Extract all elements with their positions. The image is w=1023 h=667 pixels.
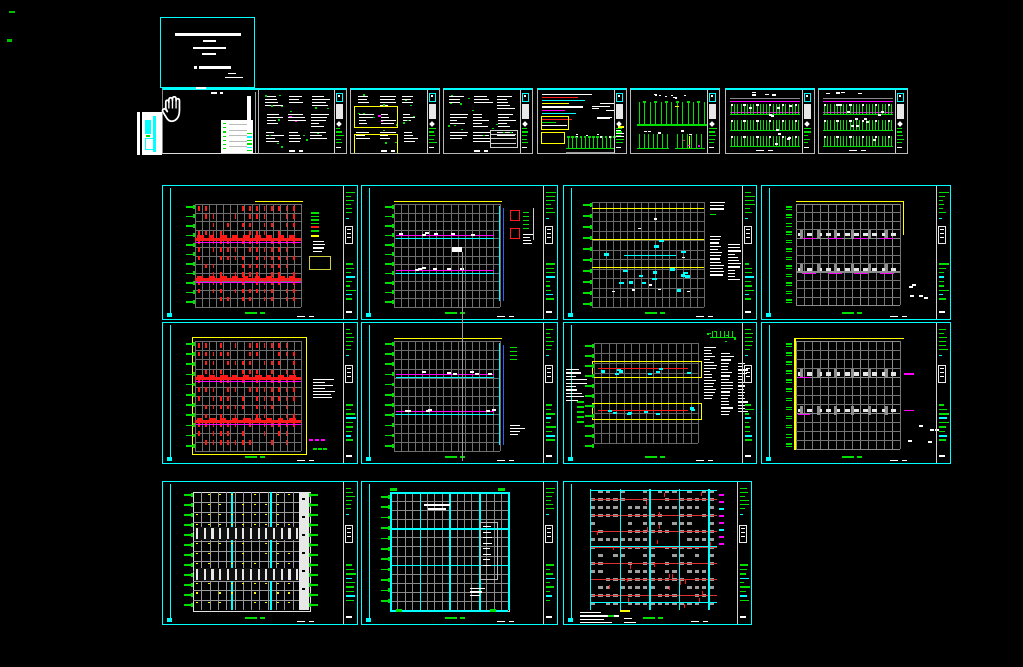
fixture-mark bbox=[208, 494, 210, 495]
circuit-stroke bbox=[293, 256, 295, 261]
titleblock-text bbox=[939, 435, 947, 437]
titleblock-text bbox=[745, 431, 750, 433]
text-line bbox=[470, 591, 482, 592]
text-line bbox=[313, 391, 335, 392]
titleblock-text bbox=[346, 417, 356, 419]
legend-mark bbox=[311, 212, 319, 214]
outlet-plan[interactable] bbox=[361, 481, 558, 625]
text-line bbox=[738, 389, 744, 390]
titleblock-text bbox=[740, 578, 749, 580]
axis-tick bbox=[385, 235, 392, 237]
grid-line bbox=[796, 297, 900, 298]
axis-tick bbox=[392, 271, 394, 275]
circuit-stroke bbox=[286, 396, 288, 401]
titleblock-text bbox=[546, 268, 554, 270]
titleblock-text bbox=[940, 368, 944, 369]
titleblock-divider bbox=[742, 323, 743, 463]
mark bbox=[775, 143, 778, 145]
text-line bbox=[313, 397, 332, 398]
riser bbox=[696, 134, 697, 148]
circuit-stroke bbox=[249, 387, 251, 392]
circuit-stroke bbox=[289, 418, 296, 421]
text-line bbox=[721, 372, 732, 373]
mark bbox=[413, 116, 415, 117]
grid-line bbox=[592, 278, 704, 279]
circuit-stroke bbox=[227, 256, 229, 261]
fixture-mark bbox=[242, 583, 244, 584]
titleblock-text bbox=[741, 536, 745, 537]
mark bbox=[486, 410, 490, 412]
riser bbox=[661, 102, 662, 124]
axis-tick bbox=[786, 409, 792, 410]
titleblock-text bbox=[740, 496, 745, 497]
panel-stroke bbox=[882, 136, 883, 146]
titleblock-text bbox=[346, 455, 352, 457]
titleblock-box bbox=[709, 104, 716, 119]
axis-tick bbox=[385, 445, 392, 447]
grid-line bbox=[394, 405, 500, 406]
titleblock-text bbox=[347, 372, 351, 373]
text-line bbox=[311, 114, 329, 115]
circuit-stroke bbox=[235, 343, 237, 348]
legend-mark bbox=[311, 216, 319, 218]
circuit-stroke bbox=[232, 375, 237, 378]
text-line bbox=[497, 105, 510, 106]
text-line bbox=[473, 114, 483, 115]
ceiling-block bbox=[695, 570, 699, 573]
axis-tick bbox=[385, 225, 392, 227]
axis-tick bbox=[193, 262, 195, 266]
grid-line bbox=[698, 343, 699, 443]
circuit-stroke bbox=[242, 256, 244, 261]
circuit-line bbox=[598, 368, 688, 369]
grid-line bbox=[592, 231, 704, 232]
panel-block bbox=[795, 136, 798, 138]
titleblock-text bbox=[347, 528, 351, 529]
distribution-sheet-2[interactable] bbox=[818, 88, 908, 154]
axis-tick bbox=[590, 203, 592, 207]
panel-stroke bbox=[792, 120, 793, 130]
axis-tick bbox=[311, 584, 318, 586]
ceiling-block bbox=[643, 586, 647, 589]
text-line bbox=[721, 382, 733, 383]
text-line bbox=[450, 135, 467, 136]
axis-tick bbox=[191, 573, 193, 577]
circuit-stroke bbox=[242, 223, 244, 228]
legend-preview-sheet[interactable] bbox=[137, 112, 162, 155]
device-block bbox=[845, 233, 850, 236]
system-diagram-sheet[interactable] bbox=[537, 88, 627, 154]
panel-block bbox=[731, 136, 734, 138]
grid-line bbox=[592, 307, 704, 308]
cad-canvas[interactable] bbox=[0, 0, 1023, 667]
fixture-mark bbox=[288, 602, 290, 603]
fixture-mark bbox=[196, 553, 198, 554]
ceiling-block bbox=[687, 586, 691, 589]
distribution-sheet-1[interactable] bbox=[725, 88, 815, 154]
mark bbox=[609, 585, 610, 589]
text-line bbox=[566, 379, 587, 380]
titleblock-text bbox=[522, 139, 527, 140]
text-line bbox=[473, 135, 489, 136]
power-plan-2[interactable] bbox=[361, 322, 558, 464]
axis-tick bbox=[592, 444, 594, 448]
panel-stroke bbox=[891, 104, 892, 114]
panel-stroke bbox=[856, 136, 857, 146]
circuit-stroke bbox=[286, 256, 288, 261]
axis-tick bbox=[786, 226, 792, 227]
titleblock-text bbox=[740, 492, 748, 493]
grid-line bbox=[270, 492, 272, 610]
circuit-stroke bbox=[266, 375, 271, 378]
panel-block bbox=[888, 120, 891, 122]
cable-line bbox=[396, 273, 494, 274]
ceiling-block bbox=[606, 538, 610, 541]
grid-line bbox=[193, 551, 309, 552]
axis-tick bbox=[191, 563, 193, 567]
text-line bbox=[229, 146, 247, 147]
mark bbox=[447, 268, 451, 270]
mark bbox=[366, 313, 371, 317]
lighting-plan-1[interactable] bbox=[162, 185, 358, 320]
column bbox=[817, 369, 820, 378]
text-line bbox=[721, 369, 728, 370]
titleblock-text bbox=[346, 488, 351, 489]
axis-tick bbox=[585, 445, 592, 447]
titleblock-text bbox=[746, 237, 750, 238]
grid-line bbox=[195, 230, 301, 231]
circuit-stroke bbox=[220, 352, 222, 357]
tray-plan-1[interactable] bbox=[563, 185, 757, 320]
sparse-plan-2[interactable] bbox=[761, 322, 951, 464]
titleblock-text bbox=[346, 586, 354, 588]
grid-line bbox=[796, 449, 900, 450]
mark bbox=[719, 529, 724, 531]
mark bbox=[568, 457, 573, 461]
titleblock-text bbox=[547, 233, 551, 234]
mark bbox=[434, 233, 438, 235]
axis-tick bbox=[193, 252, 195, 256]
axis-tick bbox=[309, 563, 311, 567]
circuit-stroke bbox=[255, 276, 260, 279]
titleblock-text bbox=[939, 404, 944, 406]
titleblock-text bbox=[740, 616, 746, 618]
mark bbox=[772, 94, 776, 95]
panel-block bbox=[875, 136, 878, 138]
grid-line bbox=[796, 359, 900, 360]
circuit-stroke bbox=[249, 370, 251, 375]
panel-stroke bbox=[869, 104, 870, 114]
fixture-mark bbox=[277, 543, 279, 544]
riser bbox=[655, 102, 656, 124]
axis-tick bbox=[583, 270, 590, 272]
titleblock-divider bbox=[543, 482, 544, 624]
titleblock-text bbox=[939, 200, 943, 201]
circuit-stroke bbox=[293, 289, 295, 294]
axis-tick bbox=[385, 353, 392, 355]
grid-line bbox=[796, 305, 900, 306]
column bbox=[250, 569, 252, 580]
text-line bbox=[721, 379, 729, 380]
mark bbox=[447, 372, 451, 374]
panel-stroke bbox=[763, 136, 764, 146]
riser-diagram-sheet[interactable] bbox=[630, 88, 720, 154]
axis-tick bbox=[193, 243, 195, 247]
axis-tick bbox=[392, 423, 394, 427]
circuit-stroke bbox=[266, 418, 272, 421]
axis-tick bbox=[184, 554, 191, 556]
axis-tick bbox=[786, 391, 792, 392]
titleblock-text bbox=[346, 409, 351, 411]
circuit-stroke bbox=[266, 235, 272, 238]
mark bbox=[433, 268, 437, 270]
titleblock-text bbox=[336, 128, 340, 129]
circuit-stroke bbox=[232, 235, 238, 238]
power-plan-1[interactable] bbox=[361, 185, 558, 320]
titleblock-text bbox=[939, 281, 944, 283]
titleblock-text bbox=[546, 204, 551, 205]
titleblock-text bbox=[346, 578, 352, 580]
circuit-stroke bbox=[220, 405, 222, 410]
axis-tick bbox=[590, 247, 592, 251]
title-text bbox=[202, 53, 216, 55]
tray-plan-2[interactable] bbox=[563, 322, 757, 464]
ceiling-block bbox=[643, 522, 647, 525]
titleblock-text bbox=[546, 341, 554, 342]
circuit-stroke bbox=[271, 361, 273, 366]
panel-stroke bbox=[785, 104, 786, 114]
sparse-plan-1[interactable] bbox=[761, 185, 951, 320]
mark bbox=[497, 460, 505, 461]
mark bbox=[730, 98, 800, 99]
titleblock-text bbox=[745, 218, 748, 219]
text-line bbox=[267, 120, 276, 121]
text-line bbox=[470, 588, 485, 589]
device-block bbox=[807, 409, 812, 412]
mark bbox=[450, 103, 452, 104]
circuit-stroke bbox=[249, 247, 251, 252]
circuit-stroke bbox=[286, 223, 288, 228]
panel-stroke bbox=[737, 136, 738, 146]
text-line bbox=[704, 353, 712, 354]
text-line bbox=[497, 96, 513, 97]
column bbox=[204, 528, 206, 539]
mark bbox=[656, 413, 660, 416]
titleblock-text bbox=[546, 285, 550, 287]
mark bbox=[703, 621, 708, 622]
mark bbox=[317, 133, 319, 134]
text-line bbox=[566, 389, 577, 390]
titleblock-text bbox=[346, 435, 351, 437]
text-line bbox=[473, 126, 489, 127]
panel-stroke bbox=[853, 104, 854, 114]
circuit-stroke bbox=[256, 289, 258, 294]
riser bbox=[639, 134, 640, 148]
schedule-sheet-2[interactable] bbox=[350, 88, 440, 154]
text-line bbox=[704, 386, 713, 387]
mark bbox=[638, 228, 641, 230]
mark bbox=[407, 120, 409, 121]
text-line bbox=[223, 144, 226, 145]
axis-tick bbox=[191, 543, 193, 547]
detail-box bbox=[510, 210, 520, 221]
sheet-title bbox=[245, 456, 257, 458]
text-line bbox=[580, 612, 601, 613]
fixture-mark bbox=[231, 583, 233, 584]
circuit-stroke bbox=[271, 370, 273, 375]
panel-stroke bbox=[830, 120, 831, 130]
riser bbox=[571, 136, 574, 138]
panel-stroke bbox=[872, 104, 873, 114]
text-line bbox=[223, 123, 226, 124]
ceiling-block bbox=[621, 554, 625, 557]
sheet-title bbox=[245, 312, 257, 314]
circuit-stroke bbox=[213, 440, 215, 445]
titleblock-text bbox=[741, 528, 745, 529]
titleblock-divider bbox=[334, 90, 335, 153]
title-text bbox=[175, 33, 241, 36]
titleblock-text bbox=[939, 298, 946, 300]
cover-sheet[interactable] bbox=[160, 17, 255, 88]
circuit-stroke bbox=[205, 206, 207, 211]
titleblock-text bbox=[939, 196, 945, 197]
device-block bbox=[854, 268, 859, 271]
text-line bbox=[483, 554, 491, 555]
tray-line bbox=[592, 267, 704, 268]
titleblock-text bbox=[939, 218, 942, 219]
mark bbox=[153, 116, 156, 152]
circuit-stroke bbox=[198, 206, 200, 211]
plan-frame bbox=[255, 201, 303, 202]
titleblock-text bbox=[940, 233, 944, 234]
ceiling-block bbox=[591, 570, 595, 573]
text-line bbox=[592, 106, 605, 107]
text-line bbox=[710, 239, 720, 240]
fixture-plan[interactable] bbox=[162, 481, 358, 625]
sheet-title bbox=[857, 312, 862, 314]
grid-line bbox=[420, 492, 422, 610]
lighting-plan-2[interactable] bbox=[162, 322, 358, 464]
axis-tick bbox=[786, 285, 792, 286]
mark bbox=[620, 610, 630, 612]
axis-tick bbox=[590, 236, 592, 240]
titleblock-text bbox=[940, 229, 944, 230]
titleblock-divider bbox=[737, 482, 738, 624]
mark bbox=[685, 580, 686, 584]
ceiling-block bbox=[613, 538, 617, 541]
circuit-stroke bbox=[271, 297, 273, 302]
text-line bbox=[510, 428, 525, 429]
text-line bbox=[473, 138, 491, 139]
panel-block bbox=[888, 104, 891, 106]
schedule-sheet-3[interactable] bbox=[443, 88, 533, 154]
panel-stroke bbox=[741, 120, 742, 130]
titleblock-text bbox=[346, 290, 356, 292]
riser bbox=[712, 331, 713, 337]
axis-tick bbox=[388, 588, 390, 592]
axis-tick bbox=[385, 414, 392, 416]
panel-stroke bbox=[750, 136, 751, 146]
circuit-stroke bbox=[227, 361, 229, 366]
titleblock-text bbox=[346, 212, 352, 213]
mark bbox=[271, 105, 273, 106]
circuit-main bbox=[195, 238, 301, 241]
titleblock-text bbox=[740, 514, 743, 515]
titleblock-text bbox=[546, 212, 555, 213]
titleblock-text bbox=[745, 426, 750, 428]
titleblock-text bbox=[346, 276, 355, 278]
fixture-mark bbox=[254, 494, 256, 495]
text-line bbox=[449, 99, 460, 100]
titleblock-text bbox=[745, 439, 752, 441]
grid-line bbox=[796, 440, 900, 441]
titleblock-text bbox=[939, 341, 946, 342]
axis-tick bbox=[193, 342, 195, 346]
circuit-stroke bbox=[242, 297, 244, 302]
legend-mark bbox=[311, 223, 319, 225]
mark bbox=[654, 218, 657, 220]
titleblock-text bbox=[429, 147, 434, 148]
table-line bbox=[490, 134, 516, 135]
circuit-stroke bbox=[278, 235, 284, 238]
mark bbox=[696, 316, 704, 317]
axis-tick bbox=[381, 569, 388, 571]
column bbox=[885, 406, 888, 415]
titleblock-text bbox=[897, 135, 903, 136]
fixture-mark bbox=[288, 524, 290, 525]
titleblock-divider bbox=[802, 90, 803, 153]
titleblock-text bbox=[346, 298, 352, 300]
text-line bbox=[616, 133, 624, 134]
text-line bbox=[450, 132, 469, 133]
titleblock-mark bbox=[338, 95, 340, 97]
axis-tick bbox=[388, 526, 390, 530]
axis-tick bbox=[786, 364, 792, 365]
ceiling-plan[interactable] bbox=[563, 481, 752, 625]
titleblock-text bbox=[346, 514, 349, 515]
mark bbox=[659, 368, 663, 371]
mark bbox=[600, 136, 602, 137]
titleblock-text bbox=[429, 142, 437, 143]
grid-line bbox=[796, 246, 900, 247]
table-line bbox=[490, 143, 516, 144]
axis-tick bbox=[392, 393, 394, 397]
axis-tick bbox=[583, 204, 590, 206]
grid-line bbox=[796, 255, 900, 256]
circuit-stroke bbox=[213, 431, 215, 436]
panel-block bbox=[862, 136, 865, 138]
text-line bbox=[704, 371, 710, 372]
axis-tick bbox=[592, 414, 594, 418]
grid-line bbox=[796, 386, 900, 387]
schedule-sheet-1[interactable] bbox=[258, 88, 347, 154]
titleblock-text bbox=[546, 337, 551, 338]
inner-margin bbox=[170, 188, 171, 317]
axis-tick bbox=[392, 300, 394, 304]
titleblock-text bbox=[745, 263, 749, 265]
titleblock-divider bbox=[707, 90, 708, 153]
titleblock-text bbox=[346, 192, 355, 193]
grid-line bbox=[594, 383, 698, 384]
mark bbox=[685, 275, 690, 278]
circuit-stroke bbox=[293, 297, 295, 302]
grid-line bbox=[193, 502, 309, 503]
circuit-stroke bbox=[242, 370, 244, 375]
circuit-main bbox=[195, 278, 301, 281]
axis-tick bbox=[786, 299, 792, 301]
circuit-stroke bbox=[278, 352, 280, 357]
text-line bbox=[523, 243, 532, 244]
